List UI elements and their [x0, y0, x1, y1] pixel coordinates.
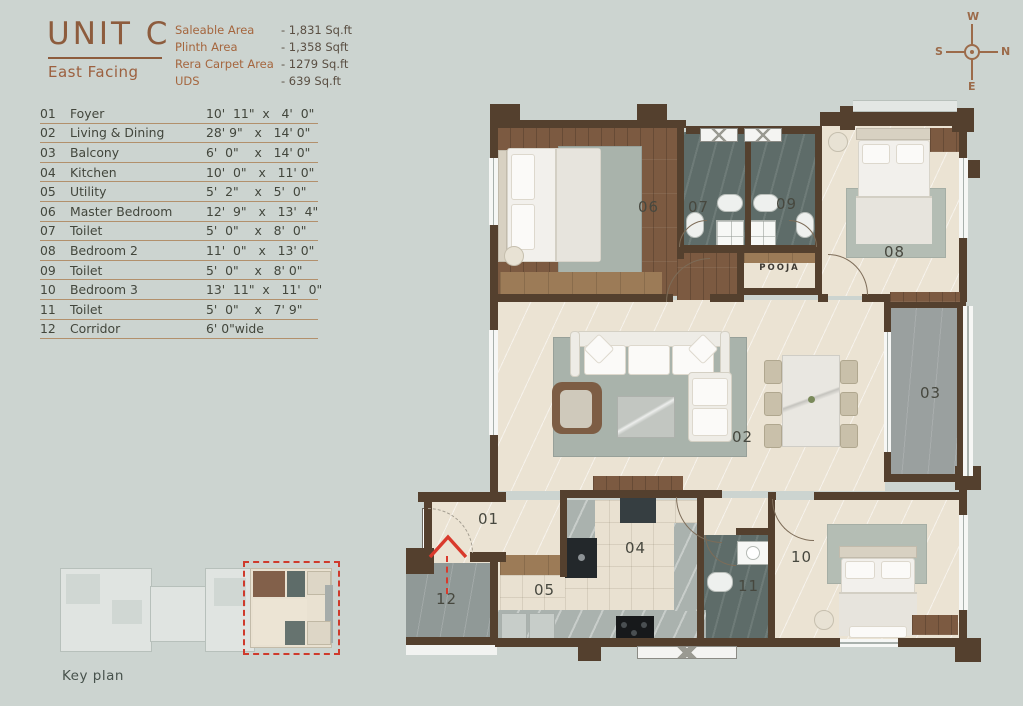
key-plan-label: Key plan — [62, 668, 124, 684]
toilet-wc — [707, 572, 733, 592]
wall — [710, 294, 744, 302]
room-label-07: 07 — [688, 198, 709, 216]
wall — [815, 126, 822, 295]
dining-chair — [840, 392, 858, 416]
dining-chair — [840, 424, 858, 448]
sunshade — [853, 100, 957, 112]
brochure-page: UNIT C East Facing Saleable Area - 1,831… — [0, 0, 1023, 706]
wall — [406, 637, 498, 645]
pillow — [881, 561, 911, 579]
sink — [717, 194, 743, 212]
stove-burner — [641, 622, 647, 628]
wall — [490, 435, 498, 500]
pillar — [578, 640, 601, 661]
wall — [560, 490, 567, 577]
washer — [501, 613, 527, 639]
key-plan: Key plan — [50, 555, 350, 695]
key-plan-block — [150, 586, 206, 642]
pillow — [896, 144, 924, 164]
room-label-05: 05 — [534, 581, 555, 599]
washer — [529, 613, 555, 639]
bed-bench — [849, 626, 907, 638]
wall — [884, 452, 891, 482]
wall — [470, 552, 506, 562]
sofa-armrest — [720, 331, 730, 377]
sofa-armrest — [570, 331, 580, 377]
bed-headboard — [856, 128, 932, 140]
pillar — [637, 104, 667, 126]
stove-burner — [621, 622, 627, 628]
wall — [884, 474, 966, 482]
window — [959, 515, 968, 610]
vent-duct — [700, 128, 738, 142]
stool — [828, 132, 848, 152]
room-label-01: 01 — [478, 510, 499, 528]
wall — [959, 238, 967, 302]
wall — [775, 638, 840, 647]
window — [959, 158, 968, 238]
wall — [745, 132, 751, 247]
dining-chair — [840, 360, 858, 384]
wall — [884, 300, 891, 332]
bench — [912, 615, 958, 635]
room-label-12: 12 — [436, 590, 457, 608]
chaise-cushion — [692, 408, 728, 436]
window — [489, 158, 498, 225]
vent-duct — [744, 128, 782, 142]
balcony-ledge — [890, 292, 960, 302]
room-label-09: 09 — [776, 195, 797, 213]
pillar — [955, 638, 981, 662]
wall — [490, 294, 673, 302]
table-plant — [808, 396, 815, 403]
pillow — [845, 561, 875, 579]
sink-basin — [746, 546, 760, 560]
side-table — [814, 610, 834, 630]
sofa-cushion — [628, 345, 670, 375]
window — [840, 639, 898, 647]
wall — [898, 638, 962, 647]
vent-duct — [637, 646, 737, 659]
balcony-railing — [963, 306, 973, 476]
dining-chair — [764, 392, 782, 416]
room-label-08: 08 — [884, 243, 905, 261]
pillow — [511, 154, 535, 200]
stove-burner — [631, 630, 637, 636]
kitchen-counter — [674, 523, 698, 611]
wall — [737, 288, 818, 295]
wall — [490, 225, 498, 330]
key-plan-room — [66, 574, 100, 604]
fridge — [620, 498, 656, 523]
dining-chair — [764, 360, 782, 384]
room-label-04: 04 — [625, 539, 646, 557]
pooja-label: POOJA — [744, 263, 815, 273]
dining-chair — [764, 424, 782, 448]
key-plan-highlight-box — [243, 561, 340, 655]
window — [489, 330, 498, 435]
key-plan-room — [112, 600, 142, 624]
key-plan-room — [214, 578, 246, 606]
entry-path-dashed — [446, 556, 448, 594]
bed-headboard — [498, 150, 507, 262]
wardrobe — [500, 272, 662, 296]
room-label-10: 10 — [791, 548, 812, 566]
room-label-02: 02 — [732, 428, 753, 446]
stool — [504, 246, 524, 266]
coffee-table — [617, 396, 675, 438]
wall — [818, 294, 828, 302]
armchair-cushion — [560, 390, 592, 428]
bed-headboard — [839, 546, 917, 558]
utility-tile-floor — [500, 575, 565, 612]
balcony-slider — [884, 332, 891, 452]
room-label-11: 11 — [738, 577, 759, 595]
duvet — [555, 149, 600, 261]
wall — [737, 250, 744, 295]
pooja-shelf — [744, 252, 815, 263]
faucet — [578, 554, 585, 561]
pillow — [511, 204, 535, 250]
pillow — [862, 144, 890, 164]
entry-arrow-icon — [427, 533, 469, 559]
chaise-cushion — [692, 378, 728, 406]
wall — [814, 492, 966, 500]
wall — [490, 553, 498, 643]
shoe-cabinet — [500, 555, 567, 575]
duvet — [856, 196, 932, 244]
pillar — [490, 104, 520, 126]
room-label-06: 06 — [638, 198, 659, 216]
room-label-03: 03 — [920, 384, 941, 402]
